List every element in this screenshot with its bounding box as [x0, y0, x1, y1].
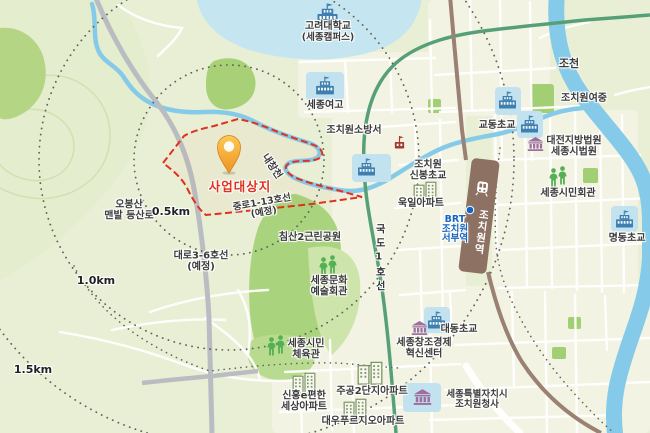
text-line: 조치원 — [410, 161, 447, 172]
label-brt-station: BRT 조치원 서부역 — [442, 215, 468, 244]
text-line: 세종시민 — [288, 340, 325, 351]
text-line: 맨발 등산로 — [104, 211, 153, 222]
label-fire-station: 조치원소방서 — [326, 126, 381, 137]
text-line: 신봉초교 — [410, 171, 447, 182]
text-line: 서부역 — [442, 234, 468, 244]
label-jochun-river: 조천 — [559, 59, 579, 70]
text-line: 대전지방법원 — [546, 137, 601, 148]
label-daewoo-apt: 대우푸르지오아파트 — [322, 417, 405, 428]
text-line: 대로3-6호선 — [174, 252, 229, 263]
text-line: 오봉산 — [104, 201, 153, 212]
text-line: 예술회관 — [311, 287, 348, 298]
label-culture-hall: 세종문화 예술회관 — [311, 277, 348, 298]
label-sinbong-elem: 조치원 신봉초교 — [410, 161, 447, 182]
label-jugong-apt: 주공2단지아파트 — [336, 387, 407, 398]
label-sejong-girls-hs: 세종여고 — [307, 101, 344, 112]
label-innovation-center: 세종창조경제 혁신센터 — [396, 339, 451, 360]
label-wookil-apt: 욱일아파트 — [398, 199, 444, 210]
text-line: 세상아파트 — [281, 402, 327, 413]
text-line: 체육관 — [288, 350, 325, 361]
map-canvas — [0, 0, 650, 433]
label-chimsan-park: 침산2근린공원 — [279, 233, 341, 244]
label-gyodong-elem: 교동초교 — [479, 121, 516, 132]
label-city-hall: 세종특별자치시 조치원청사 — [446, 390, 507, 410]
label-national-road-1: 국도1호선 — [373, 224, 384, 295]
label-shinheung-apt: 신흥e편한 세상아파트 — [281, 392, 327, 413]
text-line: (세종캠퍼스) — [302, 32, 354, 42]
label-ring-05km: 0.5km — [152, 207, 190, 218]
brt-stop-icon — [466, 206, 474, 214]
text-line: 혁신센터 — [396, 349, 451, 360]
text-line: 신흥e편한 — [281, 392, 327, 403]
text-line: 세종문화 — [311, 277, 348, 288]
text-line: 고려대학교 — [302, 22, 354, 33]
jochiwon-area-map: 고려대학교 (세종캠퍼스) 세종여고 조천 조치원여중 교동초교 대전지방법원 … — [0, 0, 650, 433]
label-daedong-elem: 대동초교 — [441, 325, 478, 336]
label-sejong-civic-hall: 세종시민회관 — [540, 189, 595, 200]
label-civic-gym: 세종시민 체육관 — [288, 340, 325, 361]
label-korea-university: 고려대학교 (세종캠퍼스) — [302, 22, 354, 43]
label-daejeon-court: 대전지방법원 세종시법원 — [546, 137, 601, 158]
label-myeongdong-elem: 명동초교 — [609, 234, 646, 245]
text-line: 세종창조경제 — [396, 339, 451, 350]
text-line: 조치원청사 — [446, 400, 507, 410]
label-planned-bigroad: 대로3-6호선 (예정) — [174, 252, 229, 273]
text-line: (예정) — [174, 262, 229, 273]
label-ring-15km: 1.5km — [14, 365, 52, 376]
gray-road-branch — [142, 371, 258, 383]
label-project-site: 사업대상지 — [209, 182, 272, 193]
text-line: 세종시법원 — [546, 147, 601, 158]
label-obongsan-trail: 오봉산 맨발 등산로 — [104, 201, 153, 222]
label-jochiwon-girls-ms: 조치원여중 — [561, 94, 607, 105]
label-ring-10km: 1.0km — [77, 276, 115, 287]
